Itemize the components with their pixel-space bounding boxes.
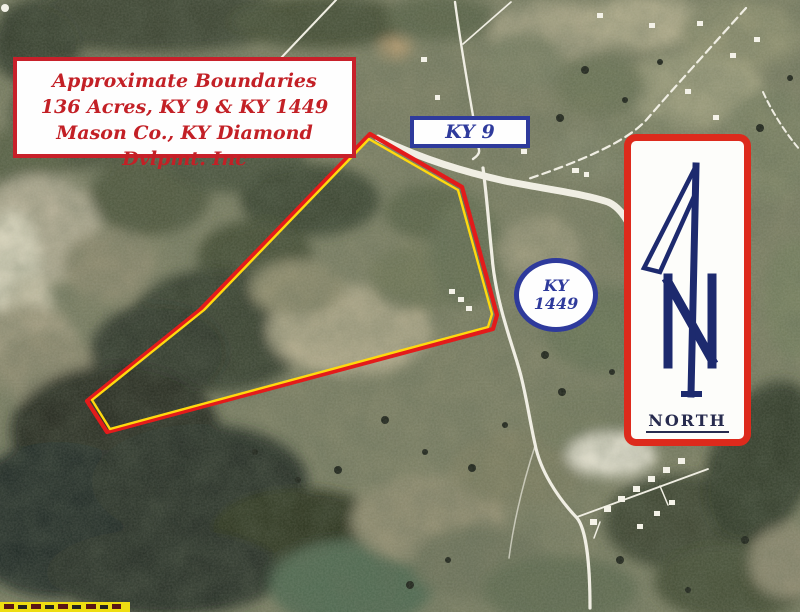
info-line-1: Approximate Boundaries (17, 68, 352, 94)
info-line-2: 136 Acres, KY 9 & KY 1449 (17, 94, 352, 120)
north-label: NORTH (631, 411, 744, 430)
road-label-ky9-text: KY 9 (445, 121, 494, 143)
aerial-map-screenshot: Approximate Boundaries 136 Acres, KY 9 &… (0, 0, 800, 612)
info-line-3: Mason Co., KY Diamond Dvlpmt. Inc (17, 120, 352, 172)
road-label-ky9: KY 9 (410, 116, 530, 148)
watermark-strip (0, 602, 130, 612)
road-label-ky1449-line2: 1449 (534, 295, 579, 313)
boundary-info-box: Approximate Boundaries 136 Acres, KY 9 &… (13, 57, 356, 158)
road-label-ky1449-line1: KY (544, 277, 569, 295)
north-arrow-icon (631, 141, 744, 439)
road-label-ky1449: KY 1449 (514, 258, 598, 332)
north-indicator: NORTH (624, 134, 751, 446)
